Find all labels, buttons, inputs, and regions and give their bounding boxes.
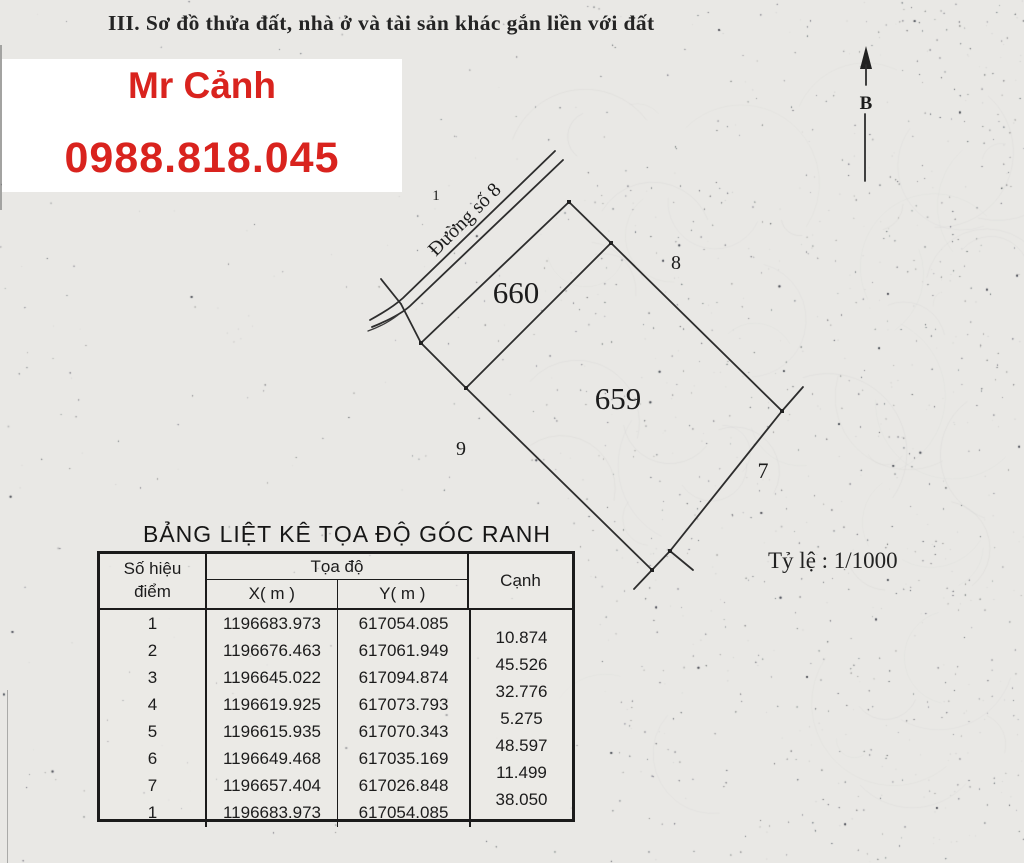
adjacent-label-1: 1 <box>432 188 440 204</box>
header-y: Y( m ) <box>337 580 468 608</box>
point-number-cell: 1 <box>100 800 205 827</box>
y-value-cell: 617094.874 <box>338 664 469 691</box>
edge-length-cell: 45.526 <box>471 651 572 678</box>
north-arrow: B <box>860 46 873 181</box>
x-value-cell: 1196649.468 <box>207 745 337 772</box>
x-value-cell: 1196683.973 <box>207 610 337 637</box>
adjacent-label-7: 7 <box>758 458 769 483</box>
y-value-cell: 617070.343 <box>338 718 469 745</box>
x-value-cell: 1196683.973 <box>207 800 337 827</box>
adjacent-label-9: 9 <box>456 438 466 460</box>
road-end-tick <box>381 279 401 304</box>
column-y-values: 617054.085617061.949617094.874617073.793… <box>337 610 469 827</box>
y-value-cell: 617035.169 <box>338 745 469 772</box>
y-value-cell: 617061.949 <box>338 637 469 664</box>
edge-length-cell: 38.050 <box>471 787 572 814</box>
edge-length-cell: 48.597 <box>471 732 572 759</box>
adjacent-label-8: 8 <box>671 252 681 274</box>
column-edge-lengths: 10.87445.52632.7765.27548.59711.49938.05… <box>469 610 572 827</box>
edge-length-cell: 32.776 <box>471 678 572 705</box>
y-value-cell: 617073.793 <box>338 691 469 718</box>
header-point-number: Số hiệu điểm <box>100 554 205 608</box>
table-body: 12345671 1196683.9731196676.4631196645.0… <box>100 610 572 827</box>
x-value-cell: 1196657.404 <box>207 773 337 800</box>
scanned-land-document: III. Sơ đồ thửa đất, nhà ở và tài sản kh… <box>0 0 1024 863</box>
column-x-values: 1196683.9731196676.4631196645.0221196619… <box>205 610 337 827</box>
coordinates-table: Số hiệu điểm Tọa độ X( m ) Y( m ) Cạnh 1… <box>97 551 575 822</box>
point-number-cell: 3 <box>100 664 205 691</box>
x-value-cell: 1196615.935 <box>207 718 337 745</box>
header-point-line1: Số hiệu <box>124 558 182 581</box>
table-title: BẢNG LIỆT KÊ TỌA ĐỘ GÓC RANH <box>143 521 551 548</box>
document-section-title: III. Sơ đồ thửa đất, nhà ở và tài sản kh… <box>108 11 655 36</box>
y-value-cell: 617054.085 <box>338 800 469 827</box>
y-value-cell: 617026.848 <box>338 773 469 800</box>
point-number-cell: 6 <box>100 745 205 772</box>
edge-length-cell: 10.874 <box>471 624 572 651</box>
table-header: Số hiệu điểm Tọa độ X( m ) Y( m ) Cạnh <box>100 554 572 610</box>
header-edge: Cạnh <box>469 554 572 608</box>
scan-edge-artifact <box>0 45 2 210</box>
header-coordinates: Tọa độ <box>207 554 467 580</box>
column-point-numbers: 12345671 <box>100 610 205 827</box>
x-value-cell: 1196676.463 <box>207 637 337 664</box>
point-number-cell: 5 <box>100 718 205 745</box>
edge-length-cell: 5.275 <box>471 705 572 732</box>
point-number-cell: 4 <box>100 691 205 718</box>
point-number-cell: 7 <box>100 773 205 800</box>
y-value-cell: 617054.085 <box>338 610 469 637</box>
north-label: B <box>860 93 873 114</box>
scan-edge-artifact-2 <box>7 690 8 863</box>
x-value-cell: 1196645.022 <box>207 664 337 691</box>
map-scale-label: Tỷ lệ : 1/1000 <box>768 548 898 574</box>
parcel-659-label: 659 <box>595 381 642 416</box>
x-value-cell: 1196619.925 <box>207 691 337 718</box>
point-number-cell: 2 <box>100 637 205 664</box>
lot-divider-line <box>466 243 611 388</box>
edge-length-cell: 11.499 <box>471 759 572 786</box>
point-number-cell: 1 <box>100 610 205 637</box>
header-x: X( m ) <box>207 580 337 608</box>
parcel-660-label: 660 <box>493 275 540 310</box>
header-point-line2: điểm <box>134 581 171 604</box>
